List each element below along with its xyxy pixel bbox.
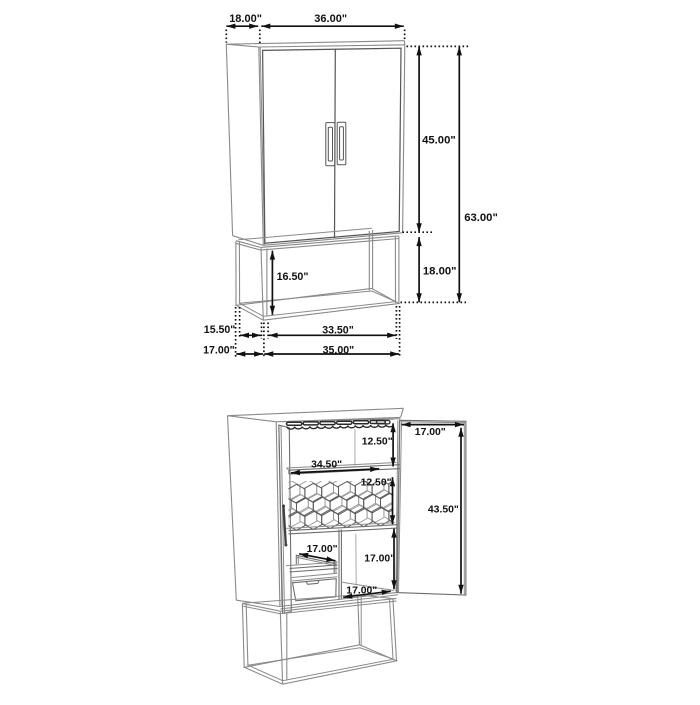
svg-text:36.00": 36.00" <box>314 13 347 25</box>
svg-text:35.00": 35.00" <box>323 344 355 356</box>
svg-text:45.00": 45.00" <box>422 135 456 147</box>
svg-text:12.50": 12.50" <box>361 477 392 488</box>
svg-text:17.00": 17.00" <box>346 586 377 597</box>
svg-text:17.00": 17.00" <box>364 553 395 564</box>
svg-text:34.50": 34.50" <box>311 460 342 471</box>
svg-text:16.50": 16.50" <box>277 271 309 283</box>
svg-text:17.00": 17.00" <box>307 544 338 555</box>
svg-text:18.00": 18.00" <box>229 13 262 25</box>
svg-text:17.00": 17.00" <box>415 427 446 438</box>
svg-text:15.50": 15.50" <box>204 324 236 336</box>
svg-text:33.50": 33.50" <box>322 324 354 336</box>
svg-text:43.50": 43.50" <box>428 504 459 515</box>
svg-text:12.50": 12.50" <box>362 437 393 448</box>
svg-text:17.00": 17.00" <box>203 345 235 357</box>
svg-text:63.00": 63.00" <box>464 212 498 224</box>
svg-text:18.00": 18.00" <box>423 265 457 277</box>
